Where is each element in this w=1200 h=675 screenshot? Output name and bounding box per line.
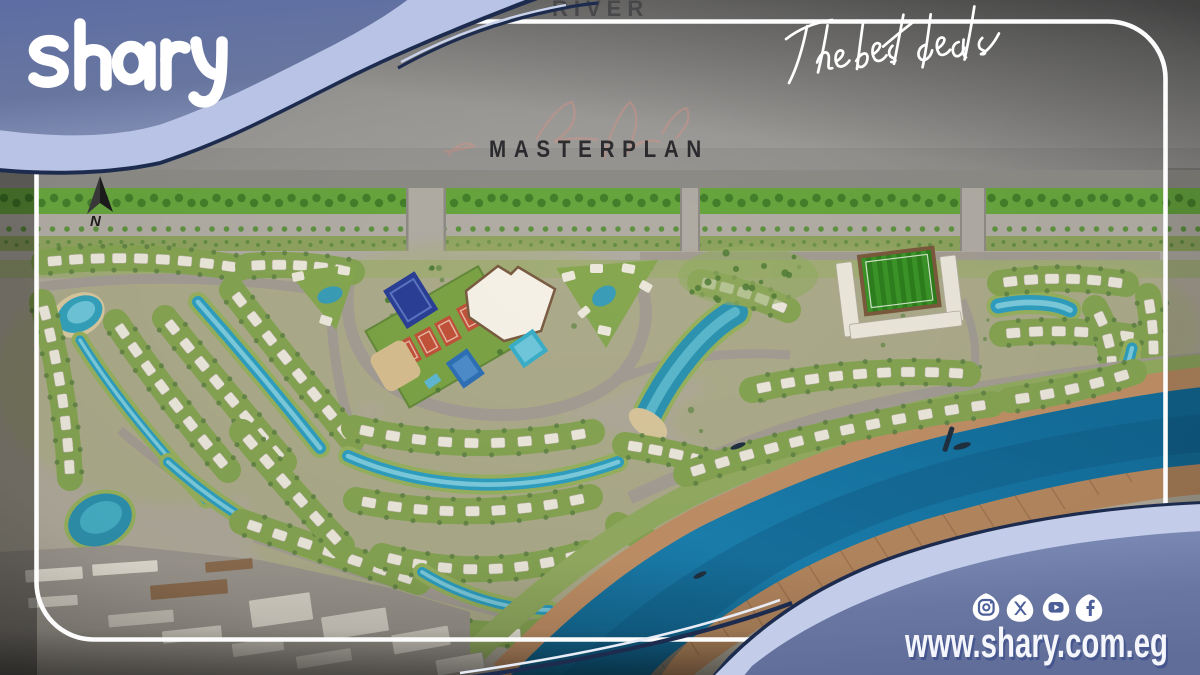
svg-text:www.shary.com.eg: www.shary.com.eg	[904, 619, 1168, 666]
